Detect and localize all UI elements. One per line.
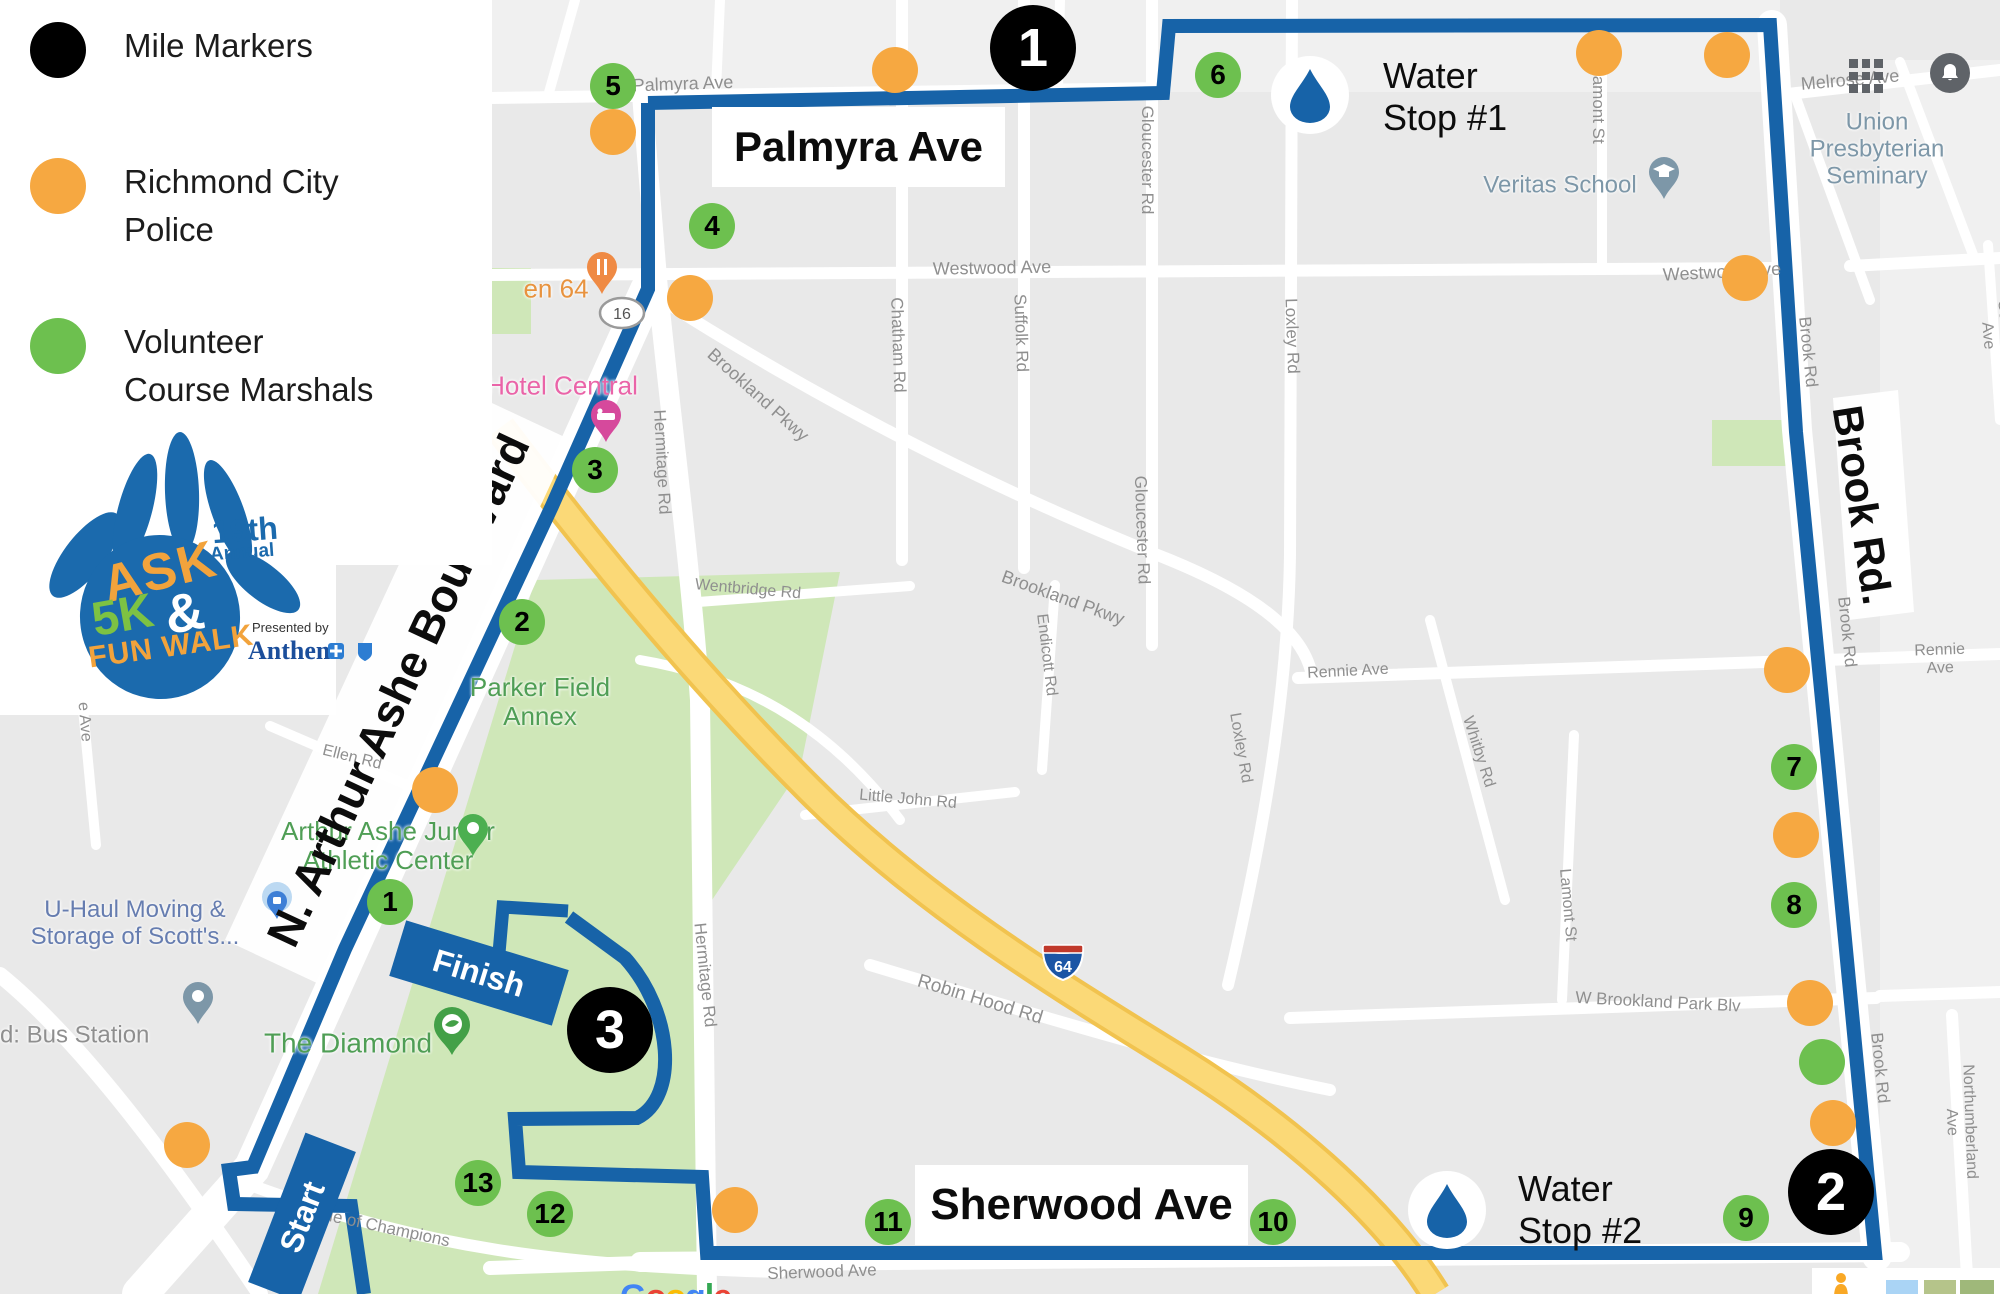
course-marshal-marker-13: 13 [455,1160,501,1206]
police-marker [1722,255,1768,301]
street-label: Chatham Rd [887,297,910,393]
police-marker [164,1122,210,1168]
poi-label: U-Haul Moving & Storage of Scott's... [31,897,240,951]
marshal-dot-swatch [30,318,86,374]
imagery-thumbnail[interactable] [1884,1278,1920,1294]
street-label: Westwood Ave [933,257,1052,280]
police-dot-swatch [30,158,86,214]
poi-label: nd: Bus Station [0,1023,149,1050]
poi-label: The Diamond [264,1027,432,1058]
mile-marker-3: 3 [567,987,653,1073]
overlay-sherwood-ave: Sherwood Ave [915,1165,1248,1245]
course-marshal-marker-6: 6 [1195,52,1241,98]
course-marshal-marker-9: 9 [1723,1195,1769,1241]
logo-annual: Annual [209,540,275,566]
police-marker [667,275,713,321]
diamond-pin [432,1005,472,1060]
pegman-icon[interactable] [1828,1272,1854,1294]
poi-label: en 64 [523,274,588,303]
legend-item-police: Richmond City Police [30,158,339,254]
poi-label: Union Presbyterian Seminary [1810,110,1945,191]
course-marshal-marker-5: 5 [590,63,636,109]
police-marker [1810,1100,1856,1146]
police-marker [872,47,918,93]
map-apps-grid-icon[interactable] [1849,59,1883,93]
bcbs-icons [328,640,374,662]
police-marker [412,767,458,813]
legend-label: Volunteer Course Marshals [124,318,373,414]
street-label: Northumberland Ave [1940,1064,1981,1180]
svg-text:64: 64 [1054,959,1072,976]
poi-label: Hotel Central [486,371,638,400]
street-label: Gloucester Rd [1130,475,1153,584]
course-marshal-marker-10: 10 [1250,1199,1296,1245]
police-marker [590,109,636,155]
course-marshal-marker-11: 11 [865,1199,911,1245]
school-pin [1647,156,1681,205]
legend-item-mile-markers: Mile Markers [30,22,313,78]
legend-label: Mile Markers [124,22,313,70]
overlay-palmyra-ave: Palmyra Ave [712,107,1005,187]
course-map: 64 16 Palmyra Ave Sherwood Ave Brook Rd.… [0,0,2000,1294]
water-stop-1-label: WaterStop #1 [1383,55,1507,140]
course-marshal-marker-2: 2 [499,599,545,645]
svg-text:16: 16 [613,306,631,323]
police-marker [1764,647,1810,693]
street-label: Rennie Ave [1909,641,1970,680]
mile-marker-2: 2 [1788,1149,1874,1235]
course-marshal-marker-1: 1 [367,879,413,925]
police-marker [1787,980,1833,1026]
course-marshal-marker-7: 7 [1771,744,1817,790]
google-logo[interactable]: Google [620,1278,731,1294]
street-label: Suffolk Rd [1010,294,1032,373]
restaurant-pin [585,251,619,300]
water-stop-2-icon [1408,1171,1486,1249]
street-label: Gloucester Rd [1137,106,1157,215]
street-label: Loxley Rd [1281,298,1303,374]
route-16-shield: 16 [600,298,644,328]
police-marker [1773,812,1819,858]
poi-label: Parker Field Annex [470,673,610,731]
logo-presented-by: Presented by [252,620,329,635]
street-label: Lamont St [1588,66,1608,144]
athletic-pin [456,813,490,862]
ask-5k-logo: ASK 5K & FUN WALK 19th Annual Presented … [20,430,350,720]
imagery-thumbnail[interactable] [1922,1278,1958,1294]
course-marshal-marker-8: 8 [1771,882,1817,928]
course-marshal-marker-12: 12 [527,1191,573,1237]
police-marker [1576,30,1622,76]
water-stop-2-label: WaterStop #2 [1518,1168,1642,1253]
course-marshal-marker-4: 4 [689,203,735,249]
legend-item-marshals: Volunteer Course Marshals [30,318,373,414]
street-label: Sherwood Ave [767,1260,877,1283]
course-marshal-marker-blank [1799,1039,1845,1085]
imagery-thumbnail[interactable] [1958,1278,1996,1294]
water-drop-icon [1288,67,1332,123]
bus-pin [181,981,215,1030]
water-drop-icon [1425,1182,1469,1238]
street-label: Palmyra Ave [632,72,733,96]
police-marker [712,1187,758,1233]
hotel-pin [589,399,623,448]
mile-marker-1: 1 [990,5,1076,91]
poi-label: Veritas School [1483,173,1636,200]
notifications-bell-icon[interactable] [1930,53,1970,93]
water-stop-1-icon [1271,56,1349,134]
course-marshal-marker-3: 3 [572,447,618,493]
mile-marker-dot [30,22,86,78]
legend-label: Richmond City Police [124,158,339,254]
police-marker [1704,32,1750,78]
